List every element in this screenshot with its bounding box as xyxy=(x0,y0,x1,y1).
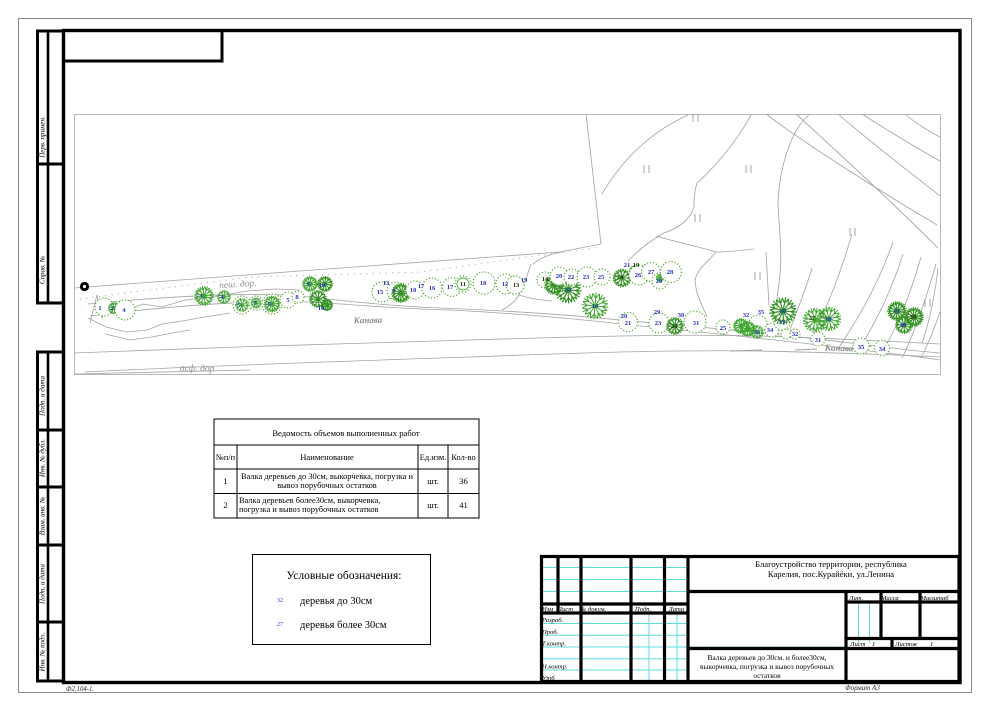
svg-text:Кол-во: Кол-во xyxy=(451,453,475,462)
svg-text:Формат А3: Формат А3 xyxy=(845,684,880,692)
svg-text:16: 16 xyxy=(429,285,436,292)
svg-text:деревья до 30см: деревья до 30см xyxy=(300,596,372,607)
svg-text:14: 14 xyxy=(542,276,549,283)
svg-text:деревья более 30см: деревья более 30см xyxy=(300,620,387,631)
svg-text:Подп.: Подп. xyxy=(634,606,652,613)
svg-text:Перв. примен.: Перв. примен. xyxy=(39,116,47,159)
svg-text:1: 1 xyxy=(98,305,101,312)
svg-text:32: 32 xyxy=(277,598,283,604)
svg-text:остатков: остатков xyxy=(753,671,781,680)
svg-text:Масса: Масса xyxy=(880,595,899,602)
svg-text:41: 41 xyxy=(459,500,468,510)
svg-text:18: 18 xyxy=(480,280,487,287)
svg-text:выкорчевка, погрузка и вывоз п: выкорчевка, погрузка и вывоз порубочных xyxy=(700,662,834,671)
svg-text:№п/п: №п/п xyxy=(216,453,236,462)
svg-text:асф. дор: асф. дор xyxy=(180,362,215,374)
svg-text:Валка деревьев до 30см. и боле: Валка деревьев до 30см. и более30см, xyxy=(707,653,826,662)
svg-text:10: 10 xyxy=(318,305,325,312)
svg-text:Лит.: Лит. xyxy=(848,595,864,602)
svg-text:32: 32 xyxy=(743,312,750,319)
svg-text:17: 17 xyxy=(418,283,425,290)
svg-text:10: 10 xyxy=(319,282,326,289)
svg-text:33: 33 xyxy=(754,329,761,336)
svg-text:Подп. и дата: Подп. и дата xyxy=(39,376,47,417)
svg-text:39: 39 xyxy=(910,314,917,321)
svg-text:35: 35 xyxy=(858,344,865,351)
svg-text:Н.контр.: Н.контр. xyxy=(541,664,568,671)
svg-text:Лист: Лист xyxy=(849,641,866,648)
svg-text:Благоустройство территории, ре: Благоустройство территории, республика xyxy=(755,559,907,569)
svg-text:37: 37 xyxy=(809,315,816,322)
svg-text:12: 12 xyxy=(502,281,509,288)
svg-text:Канава: Канава xyxy=(353,315,383,326)
svg-text:15: 15 xyxy=(377,289,384,296)
svg-text:Взам. инв. №: Взам. инв. № xyxy=(39,496,47,535)
svg-text:31: 31 xyxy=(693,320,700,327)
svg-text:Карелия, пос.Курайёки, ул.Лени: Карелия, пос.Курайёки, ул.Ленина xyxy=(768,569,894,579)
svg-text:1: 1 xyxy=(872,641,875,648)
svg-text:33: 33 xyxy=(779,319,786,326)
svg-text:Лист: Лист xyxy=(557,606,574,613)
svg-text:36: 36 xyxy=(780,308,787,315)
svg-text:Изм: Изм xyxy=(541,606,554,613)
svg-text:34: 34 xyxy=(565,287,572,294)
svg-text:1: 1 xyxy=(930,641,933,648)
svg-text:вывоз порубочных остатков: вывоз порубочных остатков xyxy=(277,481,377,490)
svg-text:20: 20 xyxy=(621,313,628,320)
svg-text:11: 11 xyxy=(460,281,466,288)
svg-text:Разраб.: Разраб. xyxy=(541,617,564,624)
svg-text:Инв. № дубл.: Инв. № дубл. xyxy=(39,439,47,478)
svg-text:14: 14 xyxy=(592,303,599,310)
svg-text:Условные обозначения:: Условные обозначения: xyxy=(286,570,401,582)
svg-text:Наименование: Наименование xyxy=(300,452,354,462)
svg-text:шт.: шт. xyxy=(427,477,439,486)
svg-text:38: 38 xyxy=(825,316,832,323)
svg-text:погрузка и вывоз порубочных ос: погрузка и вывоз порубочных остатков xyxy=(239,505,379,514)
svg-text:36: 36 xyxy=(459,476,468,486)
svg-text:40: 40 xyxy=(900,322,907,329)
svg-text:19: 19 xyxy=(521,277,528,284)
svg-text:13: 13 xyxy=(383,280,390,287)
svg-text:Валка деревьев до 30см, выкорч: Валка деревьев до 30см, выкорчевка, погр… xyxy=(241,472,413,481)
svg-text:Листов: Листов xyxy=(894,641,917,648)
svg-text:17: 17 xyxy=(447,284,454,291)
svg-text:Ф2.104-1.: Ф2.104-1. xyxy=(66,686,94,693)
svg-text:25: 25 xyxy=(598,274,605,281)
svg-text:Масштаб: Масштаб xyxy=(920,595,950,602)
svg-text:29: 29 xyxy=(654,309,661,316)
svg-text:Канава: Канава xyxy=(824,342,854,353)
svg-text:Проб.: Проб. xyxy=(541,629,559,636)
svg-text:22: 22 xyxy=(568,274,575,281)
svg-text:Подп. и дата: Подп. и дата xyxy=(39,564,47,605)
svg-text:20: 20 xyxy=(656,278,663,285)
svg-text:30: 30 xyxy=(678,312,685,319)
svg-text:21: 21 xyxy=(625,320,632,327)
svg-text:Ед.изм.: Ед.изм. xyxy=(420,453,447,462)
svg-text:Т.контр.: Т.контр. xyxy=(542,641,566,648)
svg-text:27: 27 xyxy=(277,622,283,628)
svg-text:10: 10 xyxy=(410,287,417,294)
svg-text:№ докум.: № докум. xyxy=(579,606,607,613)
svg-text:1: 1 xyxy=(223,476,227,486)
svg-text:31: 31 xyxy=(815,337,822,344)
svg-text:27: 27 xyxy=(648,269,655,276)
svg-text:41: 41 xyxy=(894,308,901,315)
svg-text:26: 26 xyxy=(635,272,642,279)
svg-text:28: 28 xyxy=(667,269,674,276)
svg-text:21: 21 xyxy=(624,262,631,269)
svg-text:Дата: Дата xyxy=(668,606,685,613)
svg-text:Инв. № подл.: Инв. № подл. xyxy=(39,632,47,672)
svg-text:2: 2 xyxy=(223,500,227,510)
svg-text:35: 35 xyxy=(758,309,765,316)
svg-text:Утб: Утб xyxy=(542,675,555,682)
svg-text:32: 32 xyxy=(792,331,799,338)
svg-text:25: 25 xyxy=(720,325,727,332)
svg-text:23: 23 xyxy=(583,274,590,281)
svg-text:34: 34 xyxy=(879,346,886,353)
svg-text:19: 19 xyxy=(633,262,640,269)
svg-text:13: 13 xyxy=(513,282,520,289)
svg-text:Валка деревьев более30см, выко: Валка деревьев более30см, выкорчевка, xyxy=(239,496,380,505)
svg-text:Ведомость объемов выполненных: Ведомость объемов выполненных работ xyxy=(272,428,420,438)
svg-text:шт.: шт. xyxy=(427,501,439,510)
svg-text:23: 23 xyxy=(655,320,662,327)
svg-text:20: 20 xyxy=(556,273,563,280)
svg-text:34: 34 xyxy=(767,327,774,334)
svg-text:Справ. №: Справ. № xyxy=(39,255,47,284)
svg-text:24: 24 xyxy=(617,274,624,281)
svg-text:24: 24 xyxy=(671,323,678,330)
